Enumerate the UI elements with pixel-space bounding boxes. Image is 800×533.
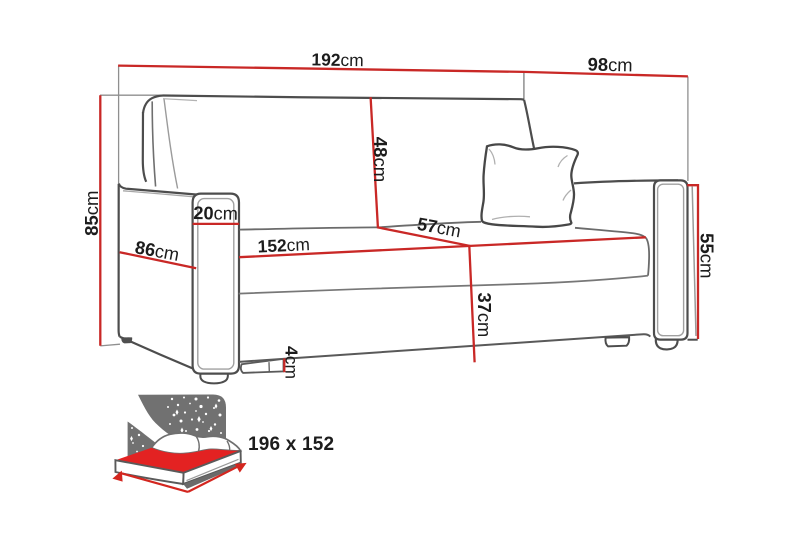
svg-text:55cm: 55cm [697,233,718,278]
svg-text:85cm: 85cm [81,190,102,235]
svg-text:98cm: 98cm [587,54,632,76]
svg-text:196 x 152: 196 x 152 [248,434,334,455]
svg-text:37cm: 37cm [474,293,495,338]
svg-text:192cm: 192cm [311,49,364,70]
svg-text:20cm: 20cm [193,203,238,224]
svg-text:152cm: 152cm [257,234,310,256]
svg-text:48cm: 48cm [370,137,391,182]
svg-text:4cm: 4cm [281,346,301,379]
